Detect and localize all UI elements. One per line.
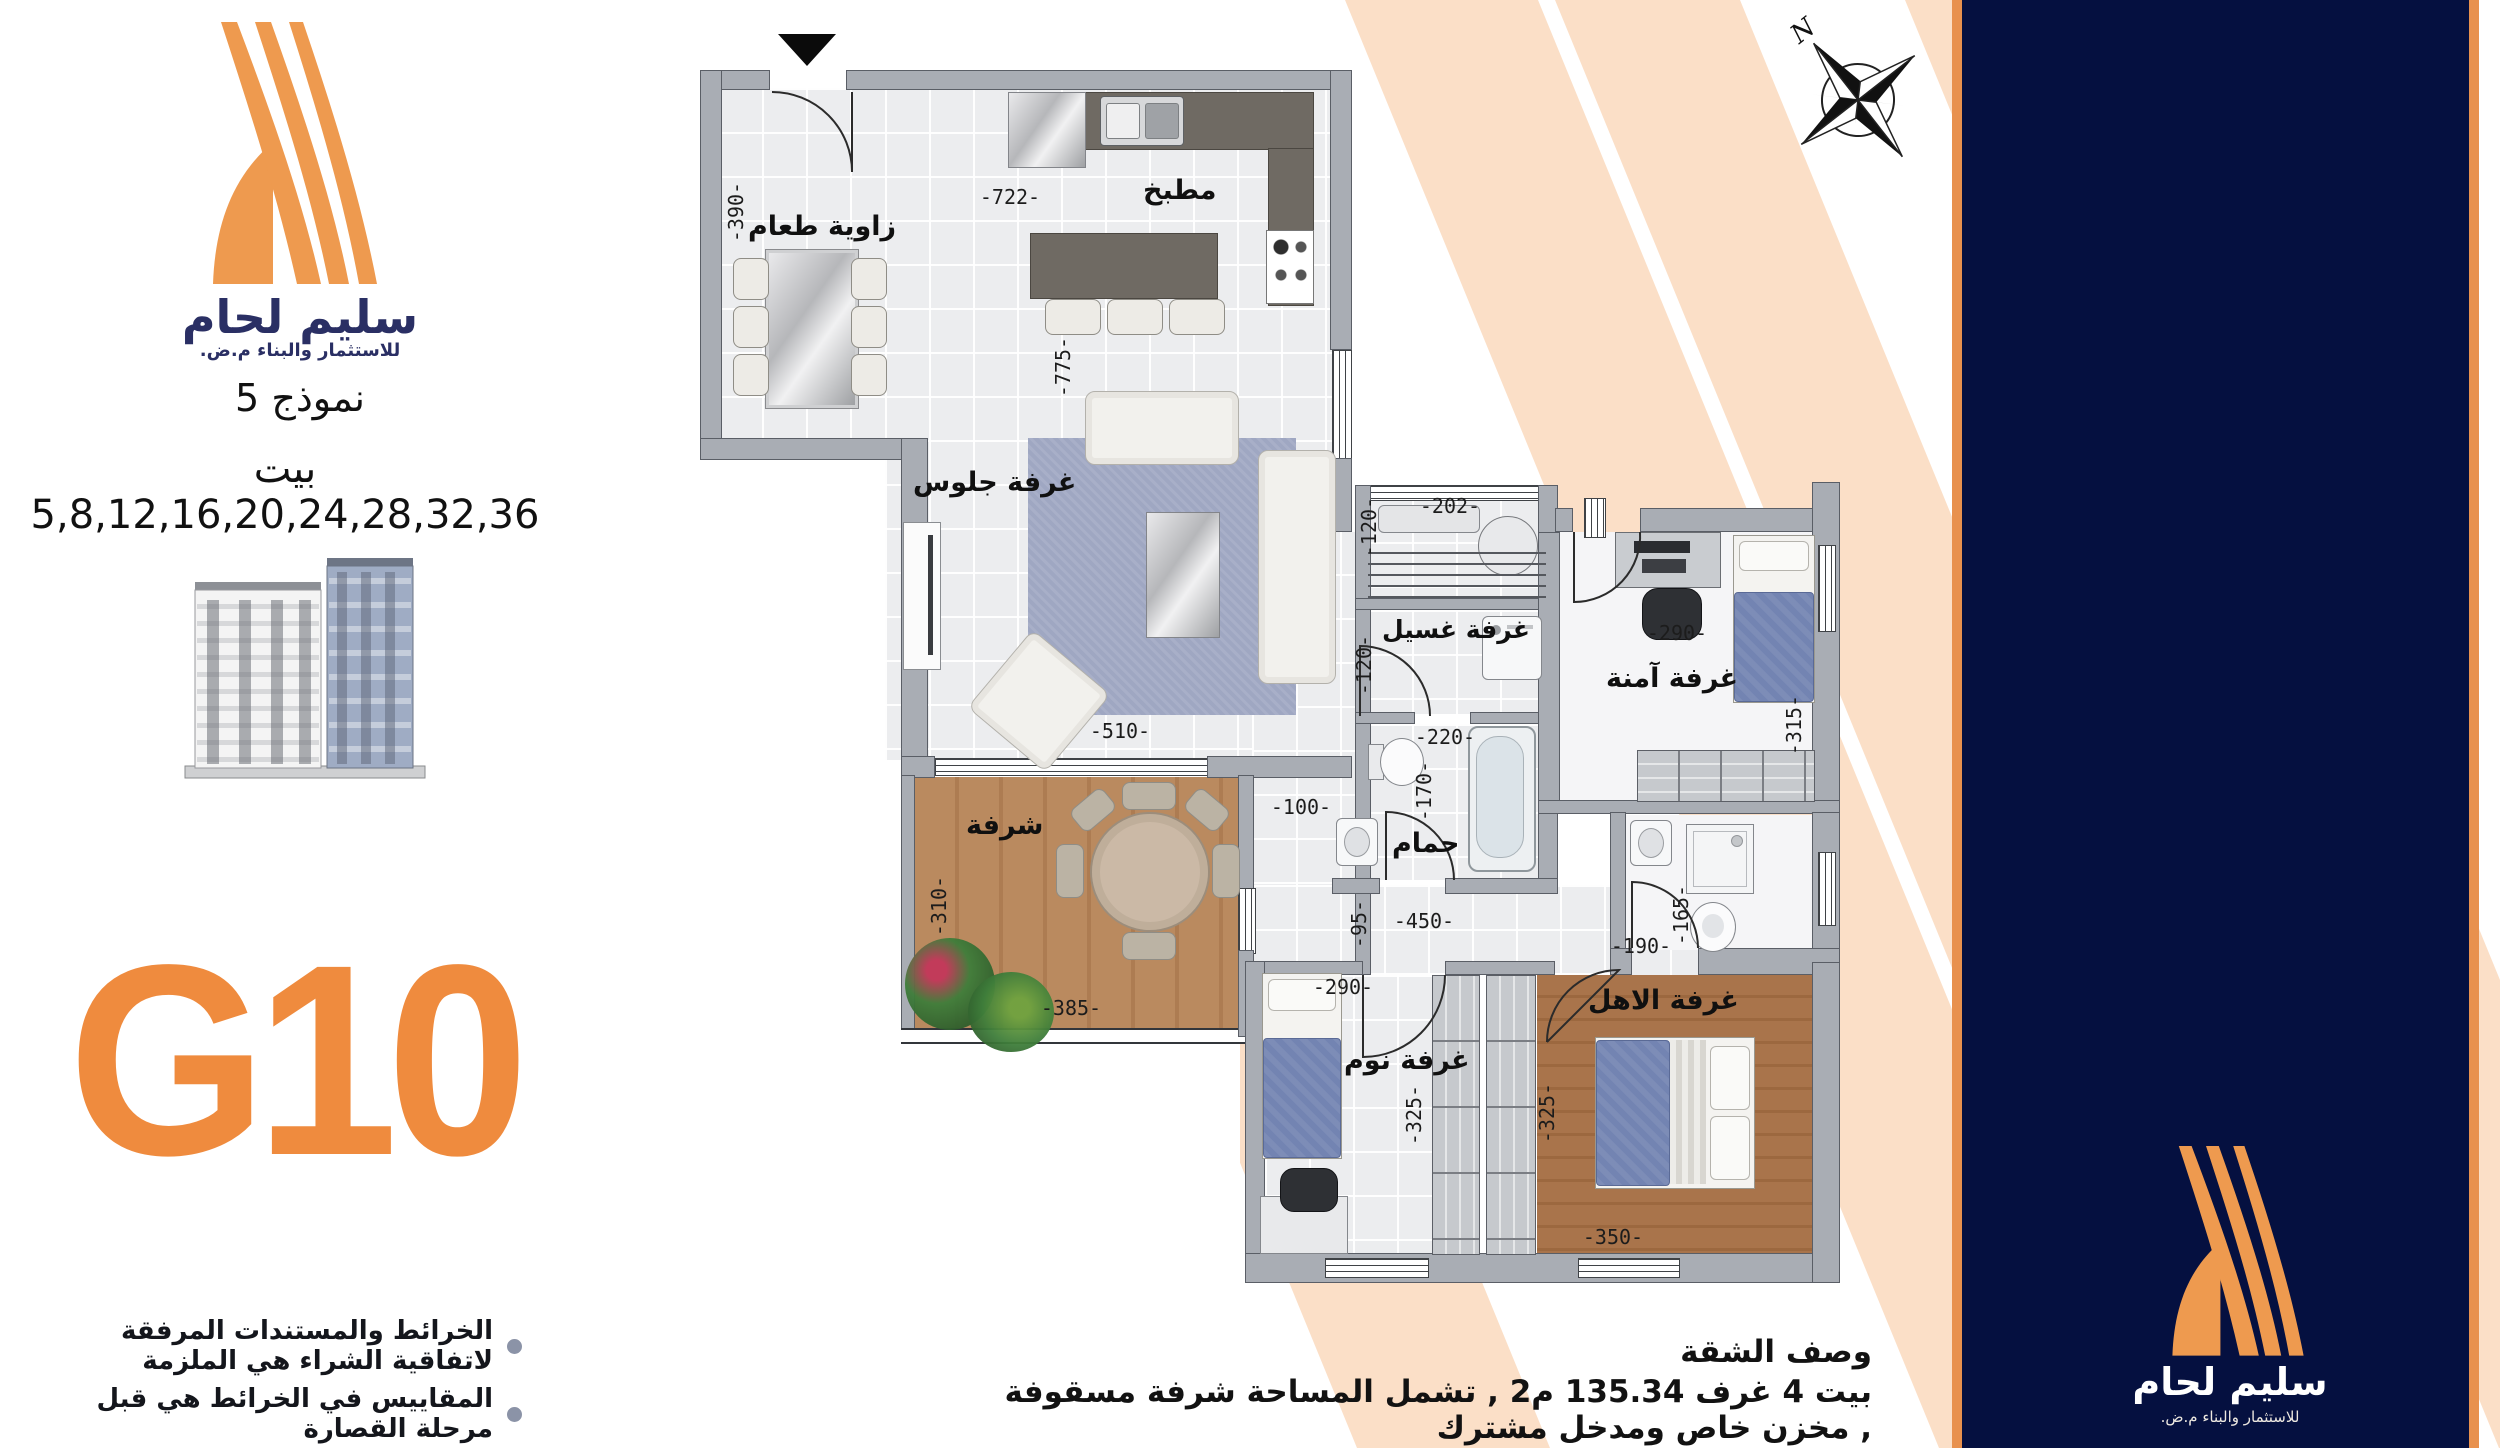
dim-202: -202- [1410, 495, 1490, 517]
dim-100: -100- [1261, 796, 1341, 818]
band-logo-swoosh-icon [2150, 1146, 2310, 1362]
dim-220: -220- [1405, 726, 1485, 748]
room-label-living: غرفة جلوس [913, 467, 1076, 498]
room-label-safe: غرفة آمنة [1606, 663, 1738, 694]
dim-290a: -290- [1637, 622, 1717, 644]
dim-385: -385- [1031, 997, 1111, 1019]
poster: سليم لحام للاستثمار والبناء م.ض. نموذج 5… [0, 0, 2500, 1448]
room-label-bedroom: غرفة نوم [1344, 1045, 1470, 1076]
room-label-balcony: شرفة [966, 810, 1043, 841]
dim-190: -190- [1601, 935, 1681, 957]
dim-450: -450- [1384, 910, 1464, 932]
dim-325b: -325- [1536, 1078, 1558, 1148]
room-label-bath: حمام [1392, 828, 1460, 859]
room-label-kitchen: مطبخ [1143, 175, 1217, 206]
dim-390: -390- [725, 177, 747, 247]
band-logo-subtitle: للاستثمار والبناء م.ض. [2110, 1408, 2350, 1426]
band-logo: سليم لحام للاستثمار والبناء م.ض. [2110, 1146, 2350, 1426]
dim-170: -170- [1413, 756, 1435, 826]
dim-120b: -120- [1353, 630, 1375, 700]
room-label-dining: زاوية طعام [748, 211, 896, 242]
dim-310: -310- [928, 871, 950, 941]
dim-510: -510- [1080, 720, 1160, 742]
room-label-master: غرفة الاهل [1588, 985, 1739, 1016]
band-logo-title: سليم لحام [2110, 1360, 2350, 1404]
dim-95: -95- [1348, 889, 1370, 959]
dim-120a: -120- [1358, 492, 1380, 562]
room-label-laundry: غرفة غسيل [1382, 615, 1530, 644]
dim-775: -775- [1052, 332, 1074, 402]
dim-722: -722- [970, 186, 1050, 208]
dim-325a: -325- [1403, 1080, 1425, 1150]
dim-290b: -290- [1303, 976, 1383, 998]
dim-350: -350- [1573, 1226, 1653, 1248]
dim-315: -315- [1783, 690, 1805, 760]
